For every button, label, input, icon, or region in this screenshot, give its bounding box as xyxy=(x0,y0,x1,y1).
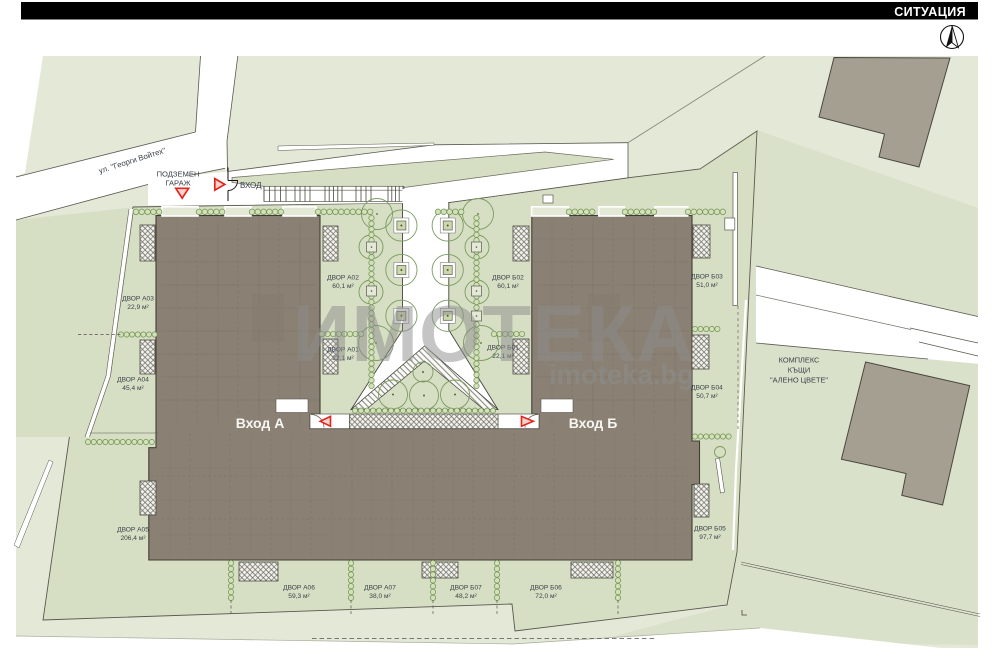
svg-text:50,7 м²: 50,7 м² xyxy=(696,393,718,400)
svg-text:Вход А: Вход А xyxy=(236,415,285,431)
svg-text:206,4 м²: 206,4 м² xyxy=(120,535,146,542)
svg-text:ДВОР Б06: ДВОР Б06 xyxy=(530,585,562,592)
svg-text:ДВОР А02: ДВОР А02 xyxy=(327,275,359,282)
svg-text:72,0 м²: 72,0 м² xyxy=(535,593,557,600)
svg-text:ДВОР А05: ДВОР А05 xyxy=(117,527,149,534)
svg-text:22,9 м²: 22,9 м² xyxy=(127,304,149,311)
svg-text:ДВОР А06: ДВОР А06 xyxy=(283,585,315,592)
svg-text:ДВОР Б02: ДВОР Б02 xyxy=(492,275,524,282)
svg-text:59,3 м²: 59,3 м² xyxy=(288,593,310,600)
svg-text:Вход Б: Вход Б xyxy=(569,415,618,431)
svg-text:51,0 м²: 51,0 м² xyxy=(696,282,718,289)
svg-text:ДВОР Б07: ДВОР Б07 xyxy=(450,585,482,592)
svg-text:45,4 м²: 45,4 м² xyxy=(122,385,144,392)
svg-text:КОМПЛЕКС: КОМПЛЕКС xyxy=(779,356,820,365)
svg-text:СИТУАЦИЯ: СИТУАЦИЯ xyxy=(894,5,966,19)
svg-text:ДВОР А07: ДВОР А07 xyxy=(364,585,396,592)
svg-text:ДВОР Б05: ДВОР Б05 xyxy=(694,526,726,533)
svg-text:ГАРАЖ: ГАРАЖ xyxy=(165,179,190,188)
svg-text:ПОДЗЕМЕН: ПОДЗЕМЕН xyxy=(157,170,200,179)
svg-text:ДВОР А04: ДВОР А04 xyxy=(117,377,149,384)
svg-text:imoteka.bg: imoteka.bg xyxy=(549,359,694,390)
svg-text:"АЛЕНО ЦВЕТЕ": "АЛЕНО ЦВЕТЕ" xyxy=(770,376,828,385)
svg-text:ДВОР Б03: ДВОР Б03 xyxy=(691,274,723,281)
svg-text:ВХОД: ВХОД xyxy=(240,181,262,190)
svg-text:48,2 м²: 48,2 м² xyxy=(455,593,477,600)
svg-text:ДВОР А03: ДВОР А03 xyxy=(122,296,154,303)
svg-text:97,7 м²: 97,7 м² xyxy=(699,534,721,541)
svg-text:ДВОР Б04: ДВОР Б04 xyxy=(691,385,723,392)
svg-text:38,0 м²: 38,0 м² xyxy=(369,593,391,600)
svg-text:КЪЩИ: КЪЩИ xyxy=(788,366,810,375)
